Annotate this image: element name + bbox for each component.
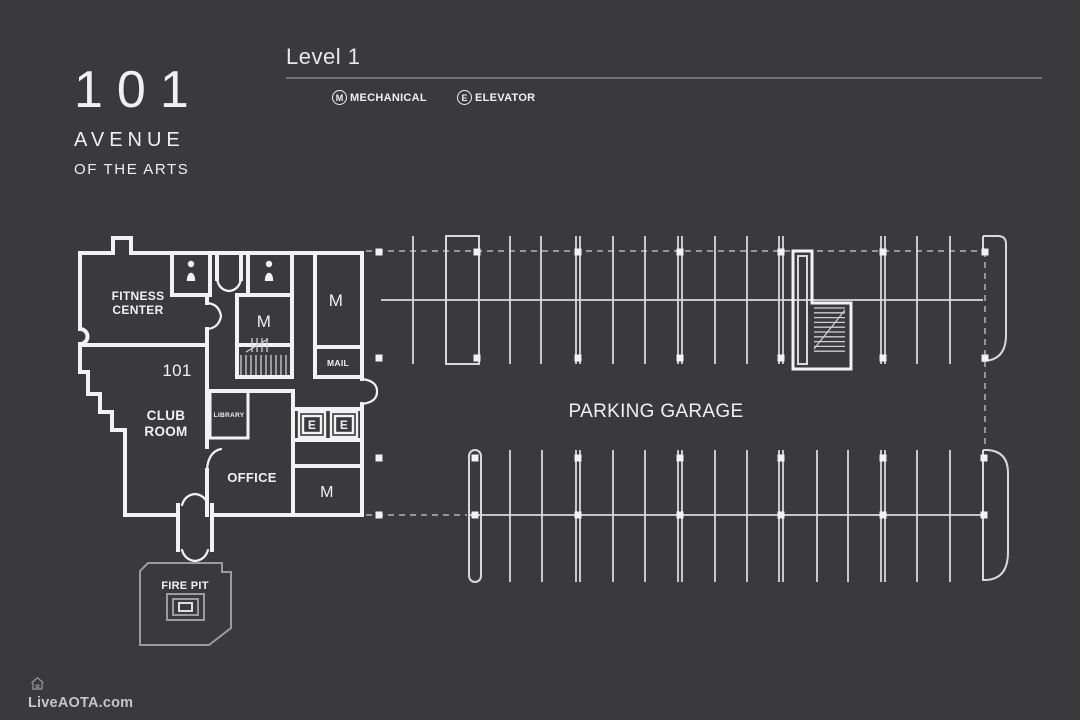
- fire-pit-ring-middle: [173, 599, 198, 615]
- room-label-mechanical-center: M: [257, 312, 271, 331]
- room-label-elevator-1: E: [308, 418, 316, 432]
- room-label-library: LIBRARY: [214, 412, 245, 419]
- parking-stalls-bottom-structural: [576, 450, 885, 582]
- room-label-club-1: CLUB: [147, 408, 186, 423]
- restroom-person-icon: [265, 261, 273, 281]
- fire-pit-area: [140, 563, 231, 645]
- area-label-parking-garage: PARKING GARAGE: [569, 401, 744, 422]
- floor-plan: FITNESS CENTER 101 CLUB ROOM LIBRARY OFF…: [0, 0, 1080, 720]
- room-label-mechanical-bottom: M: [320, 484, 334, 501]
- garage-stairwell-corridor: [798, 256, 807, 364]
- garage-boundary-dashed: [366, 251, 985, 515]
- room-label-mechanical-right: M: [329, 291, 343, 310]
- area-label-fire-pit: FIRE PIT: [161, 580, 209, 592]
- room-label-office: OFFICE: [227, 470, 276, 485]
- footer: LiveAOTA.com: [28, 676, 133, 711]
- room-label-fitness-2: CENTER: [112, 303, 163, 317]
- room-label-mail: MAIL: [327, 358, 349, 368]
- floorplan-page: 101 AVENUE OF THE ARTS Level 1 M MECHANI…: [0, 0, 1080, 720]
- room-label-club-2: ROOM: [144, 424, 187, 439]
- fire-pit-ring-inner: [179, 603, 192, 611]
- site-link[interactable]: LiveAOTA.com: [28, 695, 133, 711]
- room-label-fitness-1: FITNESS: [112, 289, 165, 303]
- room-label-unit-101: 101: [162, 361, 191, 380]
- garage-stair-treads: [814, 308, 845, 351]
- room-label-elevator-2: E: [340, 418, 348, 432]
- equal-housing-icon: [30, 676, 45, 691]
- restroom-person-icon: [187, 261, 195, 281]
- building: [80, 238, 377, 561]
